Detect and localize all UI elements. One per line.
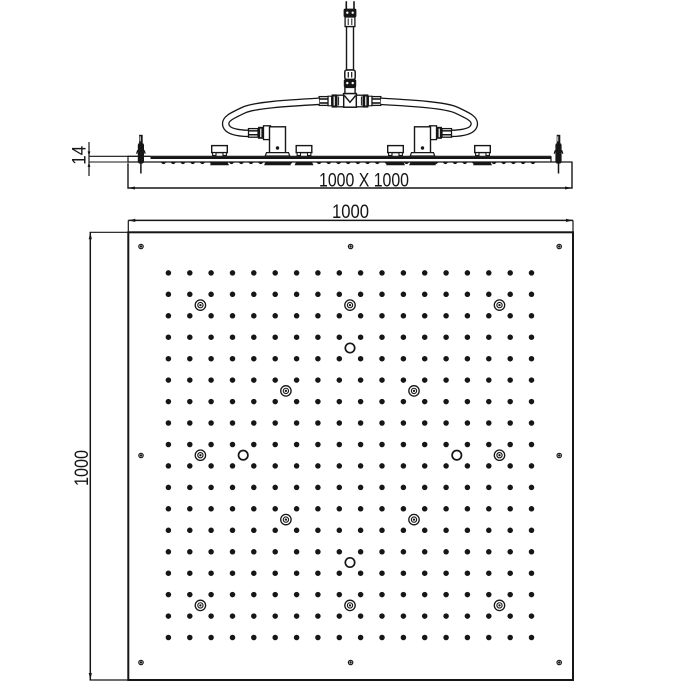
svg-text:1000: 1000 [72, 450, 93, 486]
svg-text:1000: 1000 [332, 202, 369, 223]
svg-text:14: 14 [70, 145, 91, 164]
svg-text:1000 X 1000: 1000 X 1000 [319, 171, 409, 192]
